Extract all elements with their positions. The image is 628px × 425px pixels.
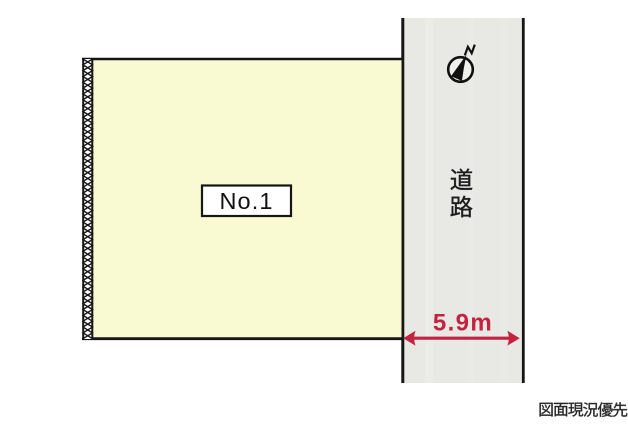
svg-text:5.9m: 5.9m [433, 310, 493, 337]
svg-text:No.1: No.1 [219, 188, 273, 214]
